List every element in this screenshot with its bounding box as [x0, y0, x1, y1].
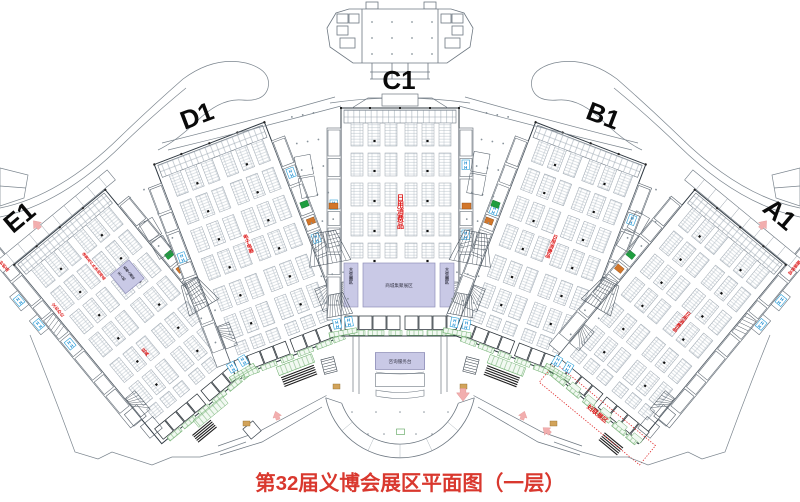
svg-text:品: 品: [397, 221, 404, 230]
svg-text:商城集聚展区: 商城集聚展区: [385, 282, 413, 289]
svg-text:日: 日: [397, 194, 404, 202]
svg-text:咨询服务台: 咨询服务台: [389, 358, 412, 365]
svg-text:第32届义博会展区平面图（一层）: 第32届义博会展区平面图（一层）: [255, 471, 565, 495]
svg-text:消: 消: [397, 207, 404, 216]
svg-text:费: 费: [397, 214, 404, 223]
svg-text:C1: C1: [382, 65, 415, 95]
svg-text:用: 用: [397, 201, 404, 209]
svg-text:H: H: [464, 165, 467, 170]
